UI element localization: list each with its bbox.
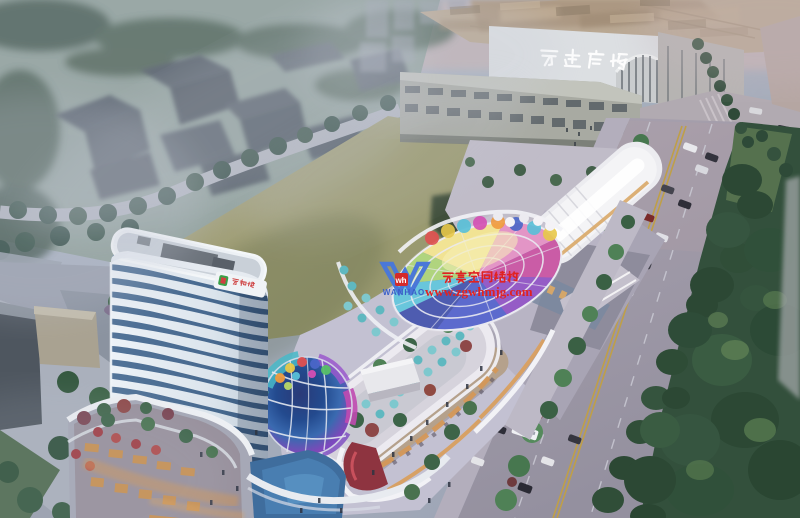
svg-text:www.zgwhmjg.com: www.zgwhmjg.com xyxy=(425,284,533,299)
svg-text:wh: wh xyxy=(394,276,406,285)
svg-text:WANHAO: WANHAO xyxy=(383,288,425,297)
